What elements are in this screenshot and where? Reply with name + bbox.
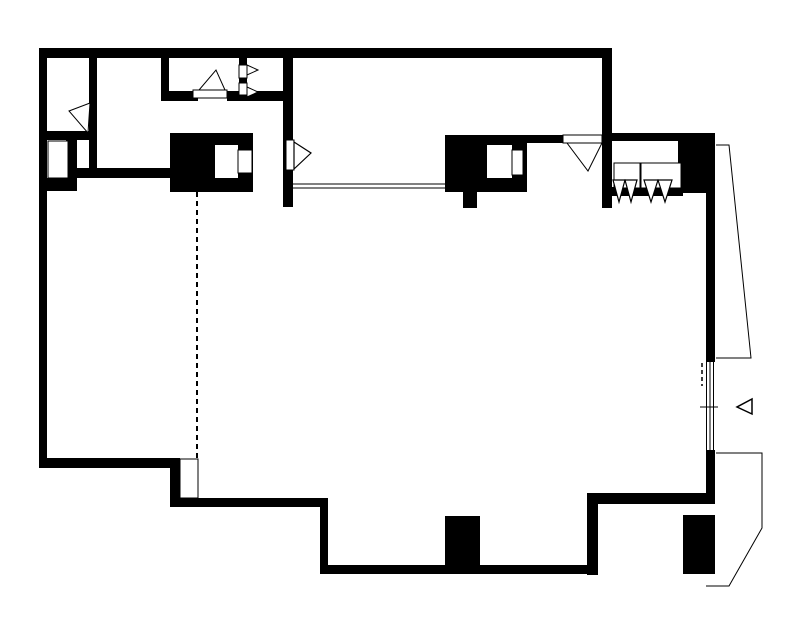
east-pier-block [678,133,715,193]
south-wall-west [180,498,328,507]
jamb-mullion-b [239,78,247,83]
hall-partition-wall [89,48,97,168]
door-swing-living [294,142,311,169]
door-swing-hall [69,103,90,133]
door-leaf-living [286,140,294,170]
floor-plan-page [0,0,797,627]
door-swing-terrace [737,399,752,414]
kitchen-door-wall [523,135,567,143]
door-swing-kitchen [567,143,602,171]
east-wall-upper [706,193,715,362]
door-swing-wc [199,70,225,90]
terrace-north-outline [716,145,751,358]
floor-plan-drawing [0,0,797,627]
top-wall [39,48,612,58]
entry-east-wall [602,48,612,208]
south-column [445,516,480,568]
alcove-top-wall [612,133,683,141]
duct-south-wall [39,178,77,191]
fireplace-east-niche [512,150,523,175]
jamb-panel-a [239,65,247,78]
southwest-wall [39,458,180,468]
southeast-step-wall [587,493,598,575]
southeast-wall [587,493,715,504]
fireplace-west-opening [215,145,238,178]
duct-shaft [48,141,68,178]
south-step-wall [320,498,328,573]
jamb-mullion-a [239,58,247,65]
closet-south-wall [60,168,173,178]
door-swing-closet-a [247,65,258,75]
southeast-column [683,515,715,574]
fireplace-east-opening [487,145,512,178]
jamb-panel-b [239,83,247,95]
fireplace-west-niche [238,150,252,173]
fireplace-stub [463,192,477,208]
wc-room-south-wall-west [161,91,198,101]
living-room-west-wall [283,48,293,207]
left-wall [39,48,47,465]
floor-plan-svg [0,0,797,627]
entry-step [180,459,198,498]
door-leaf-wc [193,90,227,98]
door-leaf-kitchen [563,135,602,143]
